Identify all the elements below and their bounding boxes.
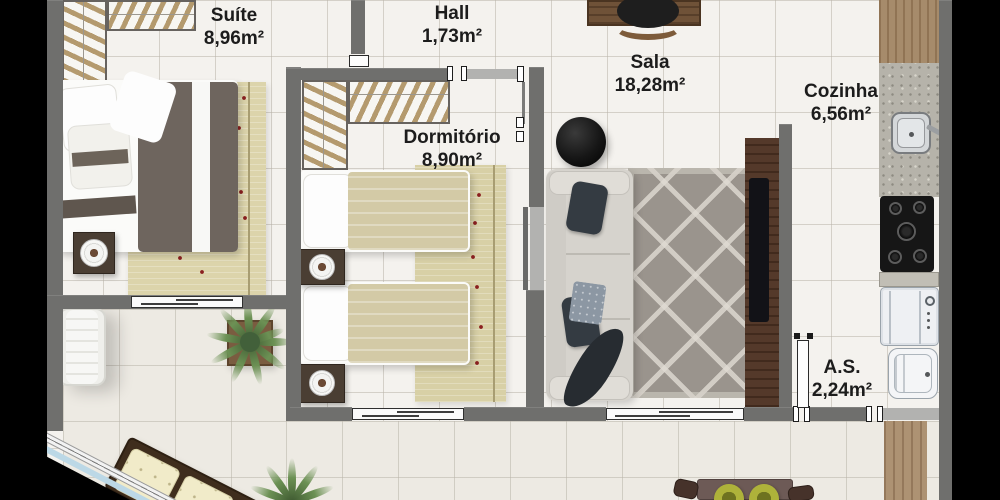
room-label-dormitorio: Dormitório 8,90m²: [403, 126, 500, 172]
laundry-tank-icon: [888, 348, 938, 399]
wall-bottom-3: [744, 407, 793, 421]
room-area: 18,28m²: [615, 74, 686, 97]
sala-door-jamb: [517, 66, 524, 82]
burner-icon: [897, 222, 916, 241]
cooktop-icon: [880, 196, 934, 272]
balcony-chair: [787, 484, 815, 500]
room-area: 2,24m²: [812, 379, 872, 402]
washer-line: [919, 291, 921, 344]
balcony-floor-bottom: [286, 421, 939, 500]
burner-icon: [888, 250, 902, 264]
room-label-as: A.S. 2,24m²: [812, 356, 872, 402]
suite-balcony-window: [131, 296, 243, 308]
balcony-door-jamb: [866, 406, 872, 422]
burner-icon: [889, 202, 902, 215]
as-door-leaf: [797, 340, 809, 408]
wall-bottom-1: [290, 407, 352, 421]
wall-sala-door-pocket: [530, 207, 544, 290]
burner-icon: [913, 249, 927, 263]
sofa-box-cushion: [568, 281, 606, 325]
pillow-stripe: [72, 149, 129, 167]
round-side-table: [556, 117, 606, 167]
washer-button: [927, 312, 930, 315]
wall-sala-cozinha: [779, 124, 792, 407]
floor-plan: Suíte 8,96m² Hall 1,73m² Dormitório 8,90…: [0, 0, 1000, 500]
sofa-cushion-line-1: [566, 253, 630, 255]
wood-deck: [884, 421, 927, 500]
duvet-stripe: [192, 82, 210, 252]
wall-right: [939, 0, 952, 500]
wall-suite-dorm: [286, 67, 301, 421]
dining-chair-back: [614, 14, 682, 40]
wall-hall: [286, 68, 448, 80]
suite-door-leaf: [349, 55, 369, 67]
room-label-suite: Suíte 8,96m²: [204, 4, 264, 50]
dorm-bed-2-blanket: [348, 284, 468, 363]
plant-core: [240, 332, 260, 352]
tv-icon: [749, 178, 769, 322]
room-label-cozinha: Cozinha 6,56m²: [804, 80, 878, 126]
dorm-door-jamb: [447, 66, 453, 81]
wall-sala-left-lower: [526, 290, 544, 421]
wall-bottom-opening: [883, 408, 939, 420]
wall-bottom-2: [464, 407, 606, 421]
dorm-sala-door-leaf: [523, 207, 528, 290]
dorm-lamp-1-icon: [309, 254, 335, 280]
room-name: Dormitório: [403, 126, 500, 149]
kitchen-cabinet: [879, 0, 939, 63]
wall-hall-vert: [351, 0, 365, 54]
suite-wardrobe-bar: [107, 0, 196, 31]
outside-left: [0, 0, 47, 500]
kitchen-sink-icon: [891, 112, 931, 154]
washer-button: [927, 326, 930, 329]
room-area: 8,96m²: [204, 27, 264, 50]
dorm-wardrobe-bar: [348, 80, 450, 124]
lounge-chair-icon: [58, 308, 106, 386]
room-name: Suíte: [204, 4, 264, 27]
dorm-bed-1-blanket: [348, 172, 468, 250]
dorm-bed-1-pillow: [303, 174, 353, 248]
sink-drain: [909, 132, 914, 137]
room-label-sala: Sala 18,28m²: [615, 51, 686, 97]
door-hinge-mark: [807, 333, 813, 339]
wall-bottom-4: [810, 407, 866, 421]
sala-door-jamb: [516, 117, 524, 128]
washer-line: [889, 291, 891, 344]
dorm-bed-2-pillow: [303, 286, 353, 361]
counter-strip: [879, 272, 939, 287]
room-area: 6,56m²: [804, 103, 878, 126]
room-area: 1,73m²: [422, 25, 482, 48]
burner-icon: [913, 201, 926, 214]
door-hinge-mark: [794, 333, 800, 339]
wall-sala-left-upper: [529, 67, 544, 207]
room-name: Hall: [422, 2, 482, 25]
outside-right: [952, 0, 1000, 500]
sofa-back: [546, 171, 566, 399]
room-name: Sala: [615, 51, 686, 74]
washing-machine-icon: [880, 287, 939, 346]
suite-lamp-icon: [80, 239, 108, 267]
wall-hall-opening: [467, 69, 518, 79]
as-door-jamb: [793, 406, 799, 422]
room-label-hall: Hall 1,73m²: [422, 2, 482, 48]
washer-button: [927, 319, 930, 322]
dorm-balcony-window: [352, 408, 464, 420]
room-name: Cozinha: [804, 80, 878, 103]
sala-balcony-window: [606, 408, 744, 420]
room-area: 8,90m²: [403, 149, 500, 172]
sala-door-jamb: [516, 131, 524, 142]
dorm-wardrobe-column: [302, 80, 348, 170]
tank-drain: [925, 372, 930, 377]
wall-left: [47, 0, 63, 431]
washer-knob: [925, 296, 935, 306]
room-name: A.S.: [812, 356, 872, 379]
living-room-rug: [628, 168, 763, 398]
dorm-lamp-2-icon: [309, 370, 335, 396]
